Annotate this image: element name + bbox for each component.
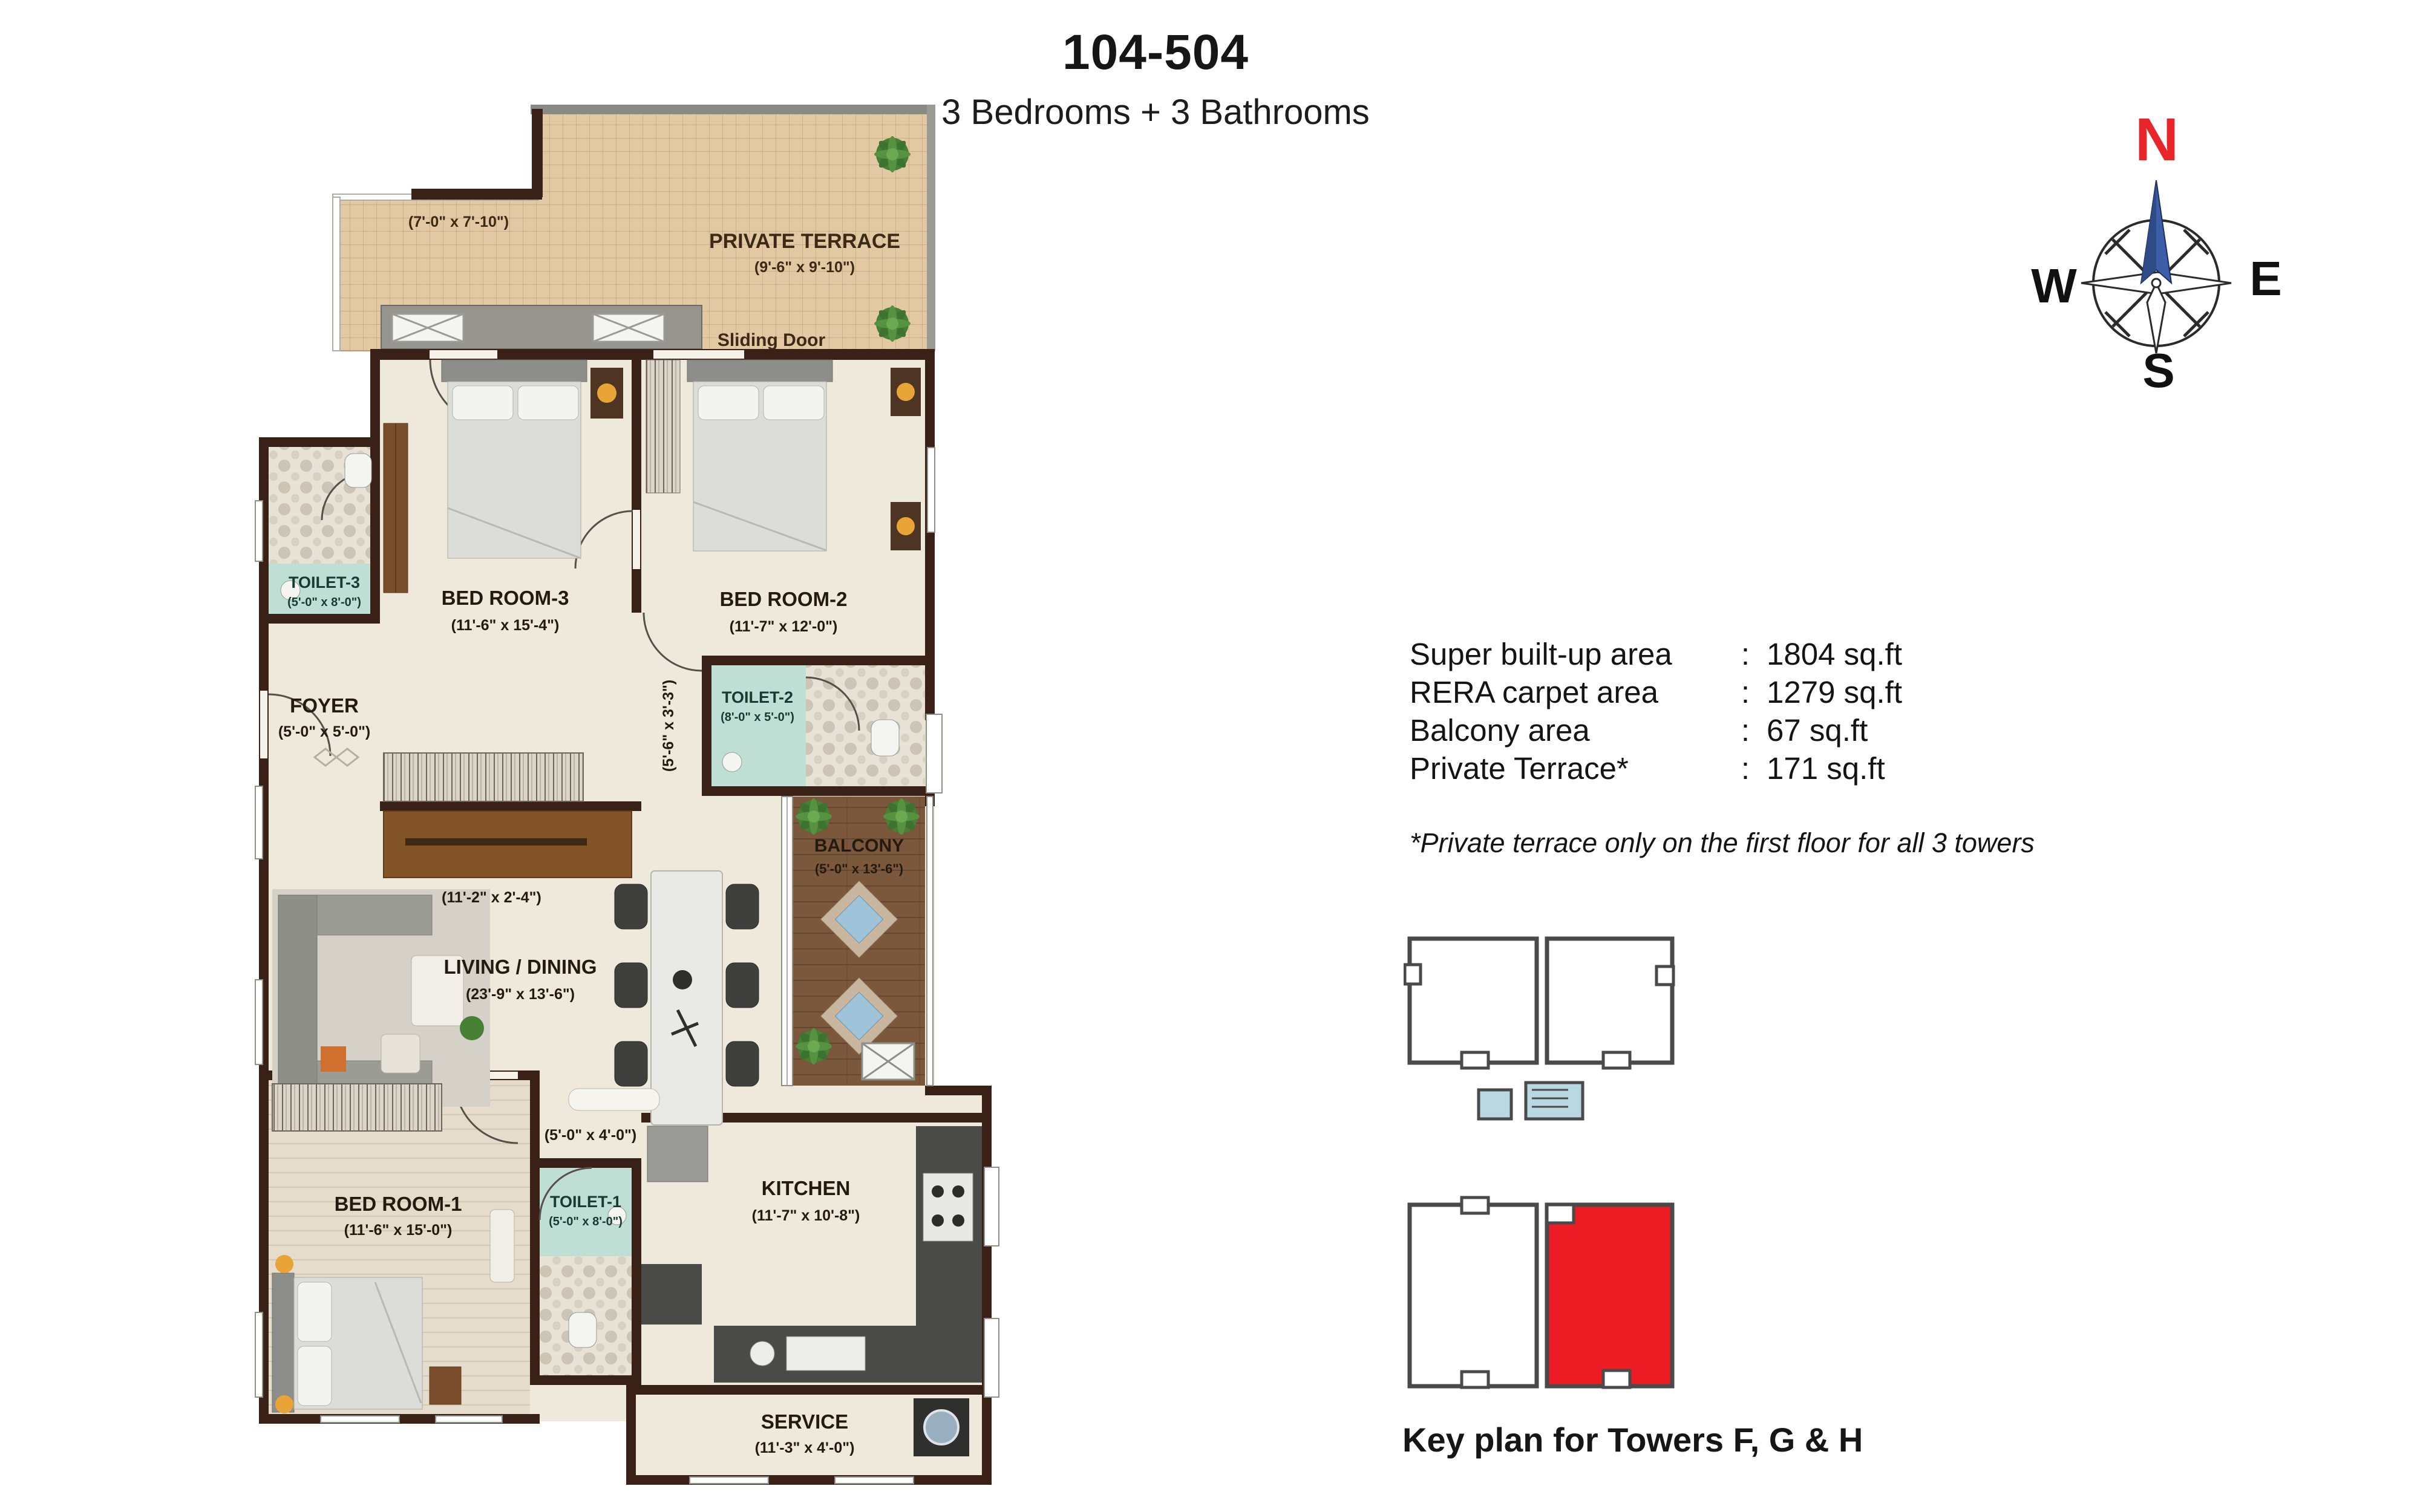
area-row: Private Terrace* : 171 sq.ft (1410, 751, 2111, 789)
service-dim: (11'-3" x 4'-0") (755, 1439, 855, 1456)
area-label: RERA carpet area (1410, 674, 1724, 710)
private-terrace: PRIVATE TERRACE (9'-6" x 9'-10") (7'-0" … (333, 105, 935, 351)
area-value: 1279 sq.ft (1767, 674, 2111, 710)
keyplan-units (1405, 939, 1673, 1387)
area-label: Private Terrace* (1410, 751, 1724, 786)
toilet1-label: TOILET-1 (550, 1193, 621, 1211)
area-table: Super built-up area : 1804 sq.ft RERA ca… (1410, 636, 2111, 789)
corridor-dim: (5'-6" x 3'-3") (660, 680, 677, 772)
area-colon: : (1724, 636, 1767, 672)
terrace-note: *Private terrace only on the first floor… (1410, 827, 2196, 859)
foyer-dim: (5'-0" x 5'-0") (278, 723, 370, 740)
area-value: 1804 sq.ft (1767, 636, 2111, 672)
wardrobe-dim: (11'-2" x 2'-4") (442, 889, 541, 906)
kitchen-label: KITCHEN (762, 1177, 851, 1199)
key-plan (1404, 931, 1682, 1403)
toilet1-dim: (5'-0" x 8'-0") (549, 1215, 623, 1228)
bedroom3-label: BED ROOM-3 (442, 587, 569, 609)
area-colon: : (1724, 712, 1767, 748)
toilet2-dim: (8'-0" x 5'-0") (721, 711, 794, 724)
area-row: Super built-up area : 1804 sq.ft (1410, 636, 2111, 674)
keyplan-caption: Key plan for Towers F, G & H (1402, 1420, 2007, 1459)
compass-rose: N W E S (2021, 103, 2293, 393)
living-label: LIVING / DINING (443, 956, 597, 978)
compass-north-label: N (2135, 106, 2179, 174)
living-dim: (23'-9" x 13'-6") (466, 986, 575, 1003)
area-value: 171 sq.ft (1767, 751, 2111, 786)
page-title: 104-504 (889, 24, 1422, 81)
service-label: SERVICE (761, 1410, 848, 1433)
area-colon: : (1724, 674, 1767, 710)
terrace-label: PRIVATE TERRACE (709, 230, 900, 253)
foyer-label: FOYER (290, 694, 359, 717)
area-value: 67 sq.ft (1767, 712, 2111, 748)
compass-west-label: W (2031, 259, 2077, 313)
area-row: Balcony area : 67 sq.ft (1410, 712, 2111, 751)
bedroom1-dim: (11'-6" x 15'-0") (344, 1222, 453, 1239)
bedroom3-dim: (11'-6" x 15'-4") (451, 617, 560, 634)
compass-graphic (2081, 180, 2231, 353)
toilet3-dim: (5'-0" x 8'-0") (287, 596, 361, 609)
area-colon: : (1724, 751, 1767, 786)
floor-plan: PRIVATE TERRACE (9'-6" x 9'-10") (7'-0" … (230, 85, 1010, 1500)
kitchen-dim: (11'-7" x 10'-8") (752, 1207, 860, 1224)
passage-dim: (5'-0" x 4'-0") (544, 1127, 636, 1144)
compass-east-label: E (2249, 252, 2281, 305)
keyplan-highlighted-unit (1547, 1205, 1672, 1386)
area-row: RERA carpet area : 1279 sq.ft (1410, 674, 2111, 712)
terrace-dim: (9'-6" x 9'-10") (754, 259, 855, 276)
terrace-dim2: (7'-0" x 7'-10") (408, 213, 509, 230)
bedroom1-label: BED ROOM-1 (335, 1193, 462, 1215)
area-label: Balcony area (1410, 712, 1724, 748)
balcony-dim: (5'-0" x 13'-6") (815, 861, 903, 876)
bedroom2-dim: (11'-7" x 12'-0") (730, 618, 838, 635)
toilet2-label: TOILET-2 (722, 688, 793, 706)
bedroom2-label: BED ROOM-2 (720, 588, 848, 610)
area-label: Super built-up area (1410, 636, 1724, 672)
sliding-door-label: Sliding Door (718, 330, 826, 350)
compass-south-label: S (2142, 344, 2174, 393)
toilet3-label: TOILET-3 (289, 573, 360, 591)
page-root: { "header": { "title": "104-504", "subti… (0, 0, 2420, 1512)
balcony-label: BALCONY (814, 836, 904, 856)
